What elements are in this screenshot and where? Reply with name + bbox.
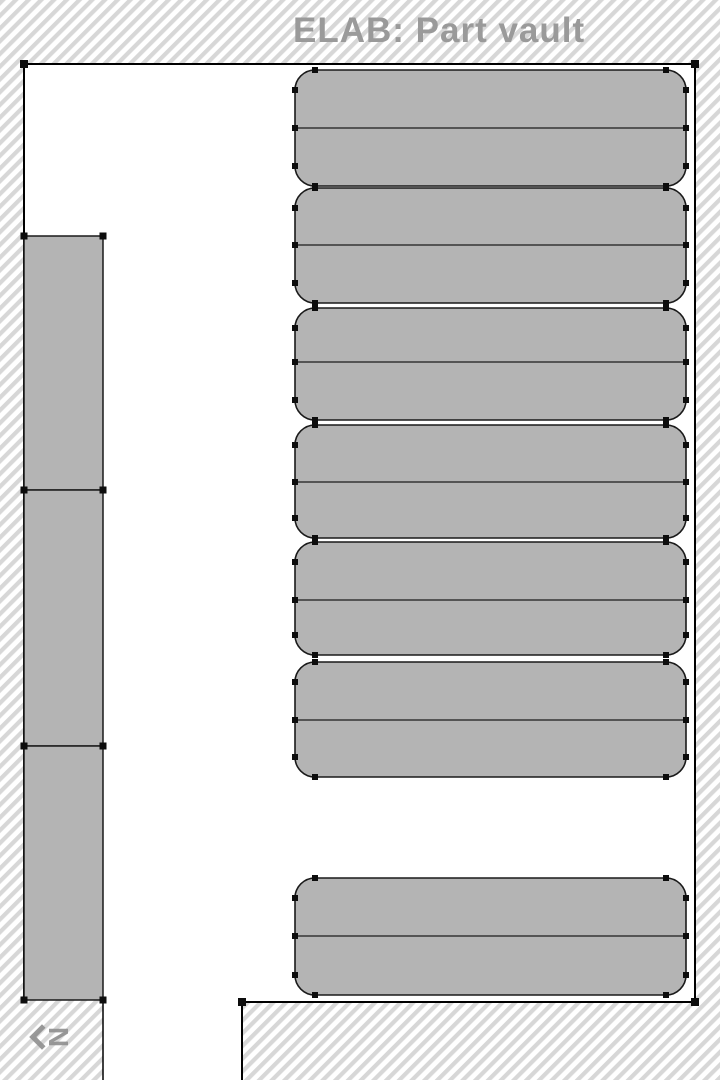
- node-handle[interactable]: [683, 972, 689, 978]
- storage-rack-3[interactable]: [295, 308, 686, 420]
- node-handle[interactable]: [663, 422, 669, 428]
- wall-shelf-3[interactable]: [24, 746, 103, 1000]
- node-handle[interactable]: [292, 125, 298, 131]
- node-handle[interactable]: [100, 487, 107, 494]
- node-handle[interactable]: [663, 774, 669, 780]
- node-handle[interactable]: [683, 280, 689, 286]
- node-handle[interactable]: [312, 539, 318, 545]
- node-handle[interactable]: [292, 163, 298, 169]
- node-handle[interactable]: [292, 325, 298, 331]
- node-handle[interactable]: [20, 60, 28, 68]
- node-handle[interactable]: [292, 754, 298, 760]
- node-handle[interactable]: [683, 442, 689, 448]
- node-handle[interactable]: [683, 325, 689, 331]
- node-handle[interactable]: [100, 743, 107, 750]
- node-handle[interactable]: [683, 597, 689, 603]
- node-handle[interactable]: [683, 163, 689, 169]
- node-handle[interactable]: [292, 597, 298, 603]
- node-handle[interactable]: [21, 997, 28, 1004]
- node-handle[interactable]: [312, 305, 318, 311]
- node-handle[interactable]: [312, 652, 318, 658]
- node-handle[interactable]: [292, 442, 298, 448]
- node-handle[interactable]: [100, 233, 107, 240]
- node-handle[interactable]: [683, 933, 689, 939]
- north-compass: N: [22, 1006, 84, 1068]
- node-handle[interactable]: [292, 359, 298, 365]
- node-handle[interactable]: [292, 397, 298, 403]
- node-handle[interactable]: [292, 559, 298, 565]
- node-handle[interactable]: [683, 205, 689, 211]
- node-handle[interactable]: [663, 652, 669, 658]
- node-handle[interactable]: [683, 632, 689, 638]
- node-handle[interactable]: [683, 479, 689, 485]
- node-handle[interactable]: [292, 895, 298, 901]
- node-handle[interactable]: [312, 875, 318, 881]
- node-handle[interactable]: [683, 359, 689, 365]
- node-handle[interactable]: [312, 992, 318, 998]
- node-handle[interactable]: [663, 992, 669, 998]
- node-handle[interactable]: [683, 515, 689, 521]
- node-handle[interactable]: [663, 305, 669, 311]
- page-title: ELAB: Part vault: [293, 11, 585, 51]
- node-handle[interactable]: [683, 397, 689, 403]
- node-handle[interactable]: [691, 60, 699, 68]
- node-handle[interactable]: [683, 754, 689, 760]
- node-handle[interactable]: [292, 933, 298, 939]
- node-handle[interactable]: [292, 205, 298, 211]
- node-handle[interactable]: [312, 659, 318, 665]
- node-handle[interactable]: [238, 998, 246, 1006]
- storage-rack-5[interactable]: [295, 542, 686, 655]
- node-handle[interactable]: [292, 280, 298, 286]
- node-handle[interactable]: [292, 679, 298, 685]
- node-handle[interactable]: [683, 717, 689, 723]
- node-handle[interactable]: [683, 895, 689, 901]
- node-handle[interactable]: [691, 998, 699, 1006]
- node-handle[interactable]: [292, 479, 298, 485]
- node-handle[interactable]: [312, 422, 318, 428]
- node-handle[interactable]: [292, 87, 298, 93]
- node-handle[interactable]: [21, 743, 28, 750]
- node-handle[interactable]: [683, 559, 689, 565]
- node-handle[interactable]: [312, 774, 318, 780]
- node-handle[interactable]: [663, 659, 669, 665]
- node-handle[interactable]: [292, 717, 298, 723]
- node-handle[interactable]: [663, 67, 669, 73]
- node-handle[interactable]: [312, 67, 318, 73]
- wall-shelf-2[interactable]: [24, 490, 103, 746]
- node-handle[interactable]: [292, 972, 298, 978]
- node-handle[interactable]: [292, 242, 298, 248]
- node-handle[interactable]: [663, 185, 669, 191]
- node-handle[interactable]: [292, 632, 298, 638]
- node-handle[interactable]: [683, 679, 689, 685]
- node-handle[interactable]: [21, 487, 28, 494]
- node-handle[interactable]: [683, 242, 689, 248]
- wall-shelf-1[interactable]: [24, 236, 103, 490]
- floorplan-drawing: [0, 0, 720, 1080]
- node-handle[interactable]: [292, 515, 298, 521]
- node-handle[interactable]: [663, 875, 669, 881]
- floorplan-canvas: ELAB: Part vault N: [0, 0, 720, 1080]
- node-handle[interactable]: [663, 539, 669, 545]
- node-handle[interactable]: [21, 233, 28, 240]
- node-handle[interactable]: [100, 997, 107, 1004]
- wall-shelves-layer: [24, 236, 103, 1000]
- node-handle[interactable]: [683, 87, 689, 93]
- node-handle[interactable]: [683, 125, 689, 131]
- node-handle[interactable]: [312, 185, 318, 191]
